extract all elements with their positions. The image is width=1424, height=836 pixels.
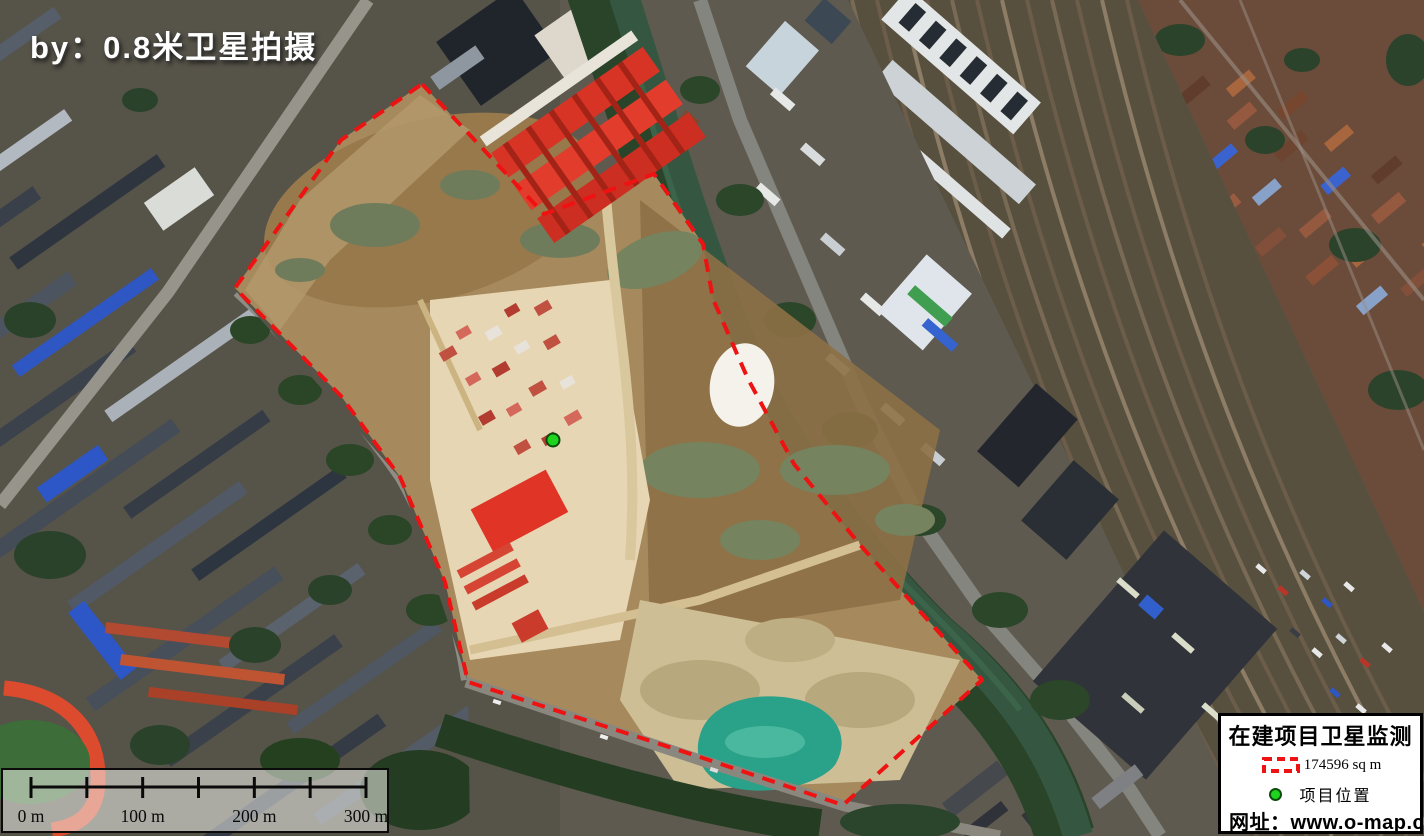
legend-area-row: 174596 sq m: [1260, 755, 1382, 775]
boundary-swatch-rect: [1264, 759, 1298, 771]
legend-title: 在建项目卫星监测: [1228, 719, 1412, 751]
boundary-swatch: [1260, 755, 1302, 775]
scale-label: 300 m: [344, 806, 387, 826]
project-marker-label: 项目位置: [1299, 782, 1371, 806]
website-label: 网址：www.o-map.cn: [1221, 806, 1424, 835]
credit-label: by：0.8米卫星拍摄: [30, 22, 317, 67]
satellite-monitoring-view: by：0.8米卫星拍摄 0 m100 m200 m300 m 在建项目卫星监测 …: [0, 0, 1424, 836]
project-location-marker: [547, 434, 560, 447]
project-marker-icon: [1269, 788, 1282, 801]
legend-marker-row: 项目位置: [1269, 782, 1371, 806]
site-boundary-polygon: [235, 84, 982, 805]
legend-panel: 在建项目卫星监测 174596 sq m 项目位置 网址：www.o-map.c…: [1218, 713, 1423, 834]
scale-label: 200 m: [232, 806, 277, 826]
annotation-overlay: [0, 0, 1424, 836]
boundary-area-label: 174596 sq m: [1304, 757, 1382, 774]
scale-label: 0 m: [18, 806, 45, 826]
scale-label: 100 m: [121, 806, 166, 826]
scale-bar: 0 m100 m200 m300 m: [1, 768, 389, 833]
